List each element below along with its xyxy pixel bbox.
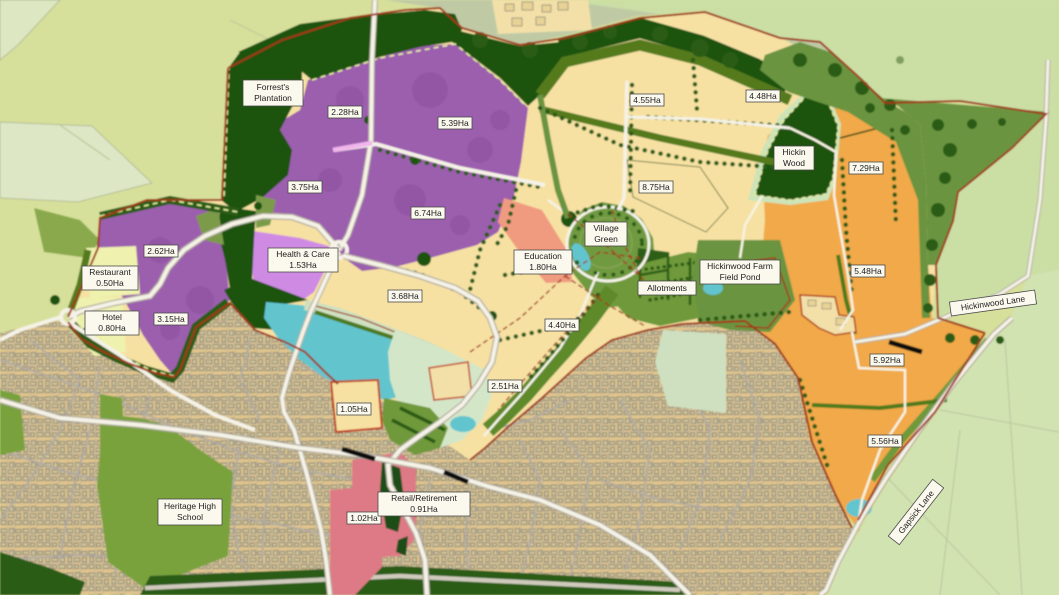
- svg-text:1.05Ha: 1.05Ha: [340, 404, 368, 414]
- svg-text:Field Pond: Field Pond: [720, 272, 761, 282]
- svg-text:0.91Ha: 0.91Ha: [410, 504, 438, 514]
- svg-text:Hickin: Hickin: [782, 147, 805, 157]
- svg-text:School: School: [177, 512, 203, 522]
- svg-text:5.92Ha: 5.92Ha: [873, 355, 901, 365]
- svg-text:Allotments: Allotments: [647, 283, 687, 293]
- svg-text:1.53Ha: 1.53Ha: [289, 260, 317, 270]
- svg-text:Restaurant: Restaurant: [89, 267, 131, 277]
- svg-text:1.80Ha: 1.80Ha: [529, 262, 557, 272]
- svg-text:Education: Education: [524, 251, 562, 261]
- svg-text:7.29Ha: 7.29Ha: [852, 163, 880, 173]
- svg-text:5.39Ha: 5.39Ha: [441, 118, 469, 128]
- svg-text:4.40Ha: 4.40Ha: [548, 320, 576, 330]
- svg-text:Hotel: Hotel: [102, 312, 122, 322]
- svg-text:Village: Village: [593, 223, 619, 233]
- svg-text:1.02Ha: 1.02Ha: [350, 513, 378, 523]
- svg-text:2.51Ha: 2.51Ha: [491, 381, 519, 391]
- svg-text:4.48Ha: 4.48Ha: [749, 91, 777, 101]
- svg-text:2.62Ha: 2.62Ha: [147, 246, 175, 256]
- svg-text:3.75Ha: 3.75Ha: [291, 182, 319, 192]
- svg-text:3.68Ha: 3.68Ha: [391, 291, 419, 301]
- svg-text:5.48Ha: 5.48Ha: [854, 266, 882, 276]
- svg-text:Plantation: Plantation: [254, 93, 292, 103]
- svg-text:Hickinwood Farm: Hickinwood Farm: [707, 261, 773, 271]
- svg-text:Health & Care: Health & Care: [276, 249, 330, 259]
- svg-text:2.28Ha: 2.28Ha: [331, 107, 359, 117]
- svg-text:Heritage High: Heritage High: [164, 501, 216, 511]
- svg-text:6.74Ha: 6.74Ha: [414, 208, 442, 218]
- svg-text:4.55Ha: 4.55Ha: [633, 95, 661, 105]
- svg-text:Forrest's: Forrest's: [257, 82, 290, 92]
- svg-text:8.75Ha: 8.75Ha: [642, 182, 670, 192]
- svg-text:0.50Ha: 0.50Ha: [96, 278, 124, 288]
- svg-text:5.56Ha: 5.56Ha: [871, 436, 899, 446]
- svg-text:3.15Ha: 3.15Ha: [157, 314, 185, 324]
- svg-text:Green: Green: [594, 234, 618, 244]
- svg-text:Wood: Wood: [783, 158, 805, 168]
- svg-text:Retail/Retirement: Retail/Retirement: [391, 493, 457, 503]
- svg-text:0.80Ha: 0.80Ha: [98, 323, 126, 333]
